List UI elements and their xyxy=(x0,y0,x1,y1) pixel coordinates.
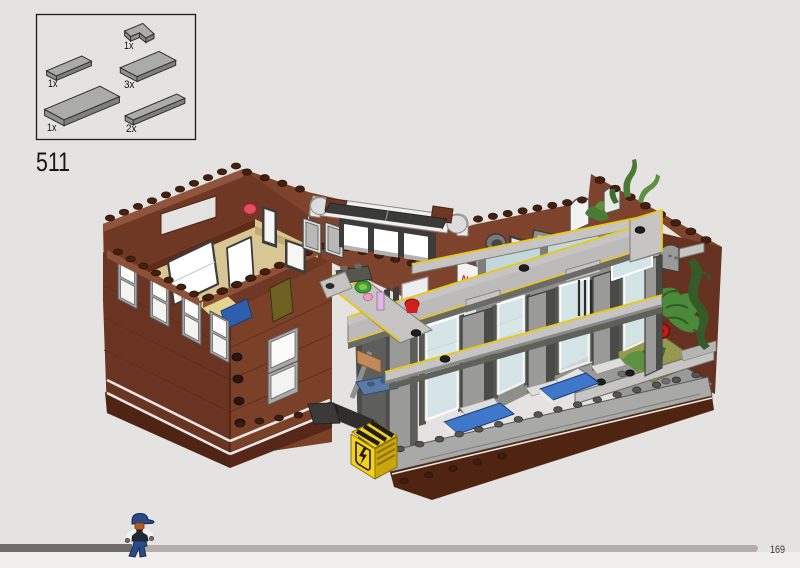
svg-text:2x: 2x xyxy=(126,123,137,135)
svg-text:1x: 1x xyxy=(48,78,58,90)
svg-text:169: 169 xyxy=(770,544,785,556)
svg-text:511: 511 xyxy=(36,147,70,177)
svg-text:1x: 1x xyxy=(124,40,134,52)
svg-text:1x: 1x xyxy=(47,122,57,134)
svg-text:3x: 3x xyxy=(124,79,135,91)
